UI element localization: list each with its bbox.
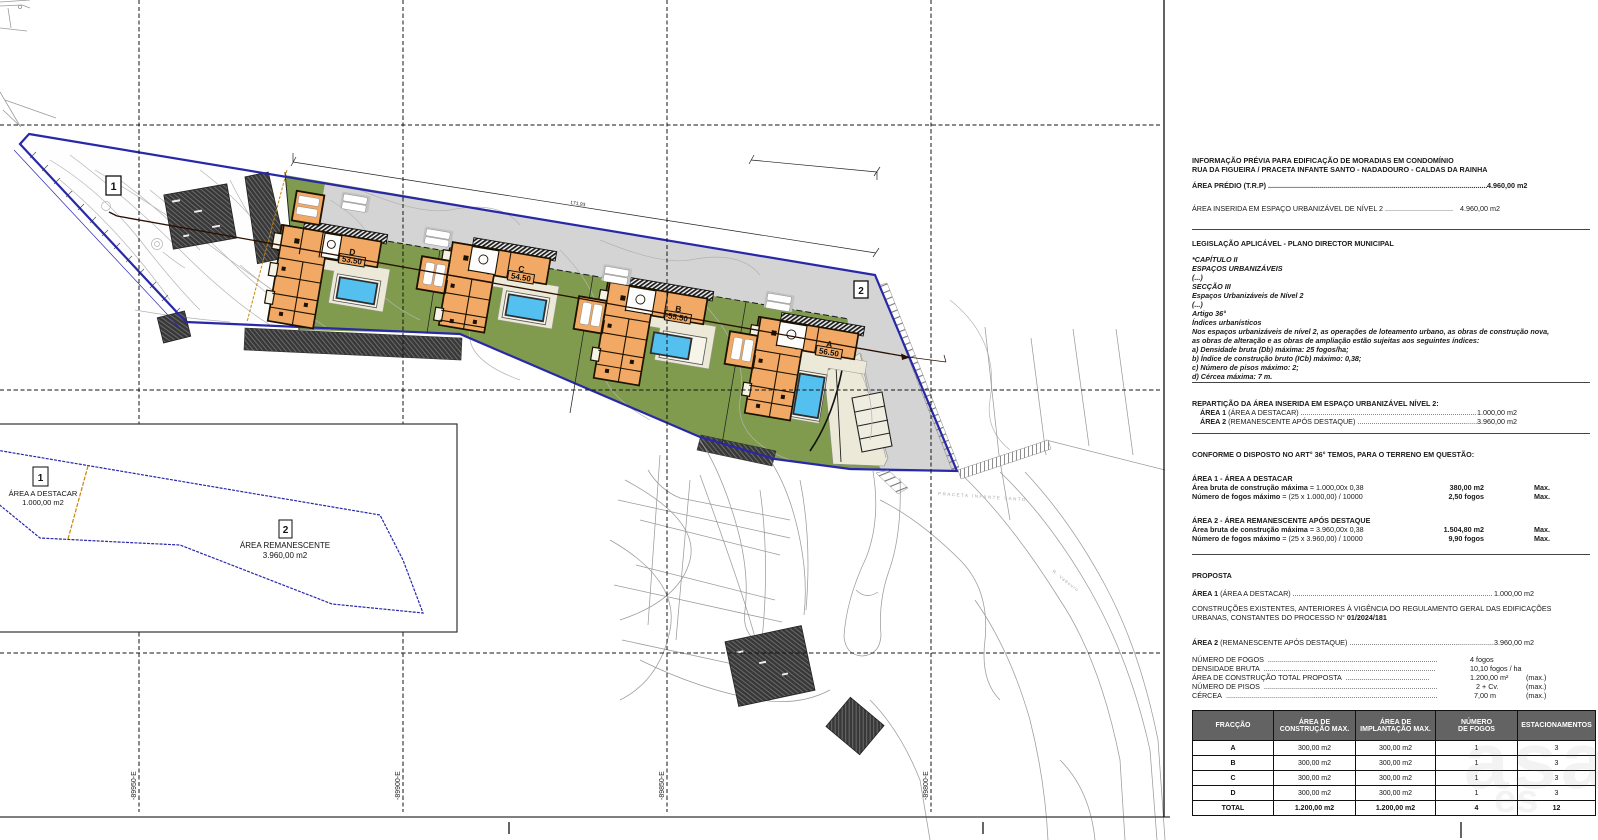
svg-text:R. Vadouro: R. Vadouro <box>1051 569 1080 593</box>
svg-text:-89900-E: -89900-E <box>395 771 402 800</box>
svg-text:-89800-E: -89800-E <box>923 771 930 800</box>
svg-text:ÁREA REMANESCENTE: ÁREA REMANESCENTE <box>240 541 330 550</box>
svg-text:PRACETA INFANTE SANTO: PRACETA INFANTE SANTO <box>938 491 1027 502</box>
svg-text:1: 1 <box>110 181 116 193</box>
svg-text:3.960,00 m2: 3.960,00 m2 <box>263 551 308 560</box>
svg-text:-89950-E: -89950-E <box>131 771 138 800</box>
svg-text:171,93: 171,93 <box>570 200 586 208</box>
svg-text:ÁREA A DESTACAR: ÁREA A DESTACAR <box>9 489 78 498</box>
svg-text:-89850-E: -89850-E <box>659 771 666 800</box>
svg-text:2: 2 <box>858 286 864 297</box>
svg-text:1.000,00 m2: 1.000,00 m2 <box>22 498 64 507</box>
svg-text:2: 2 <box>283 525 289 536</box>
svg-text:1: 1 <box>38 473 44 484</box>
